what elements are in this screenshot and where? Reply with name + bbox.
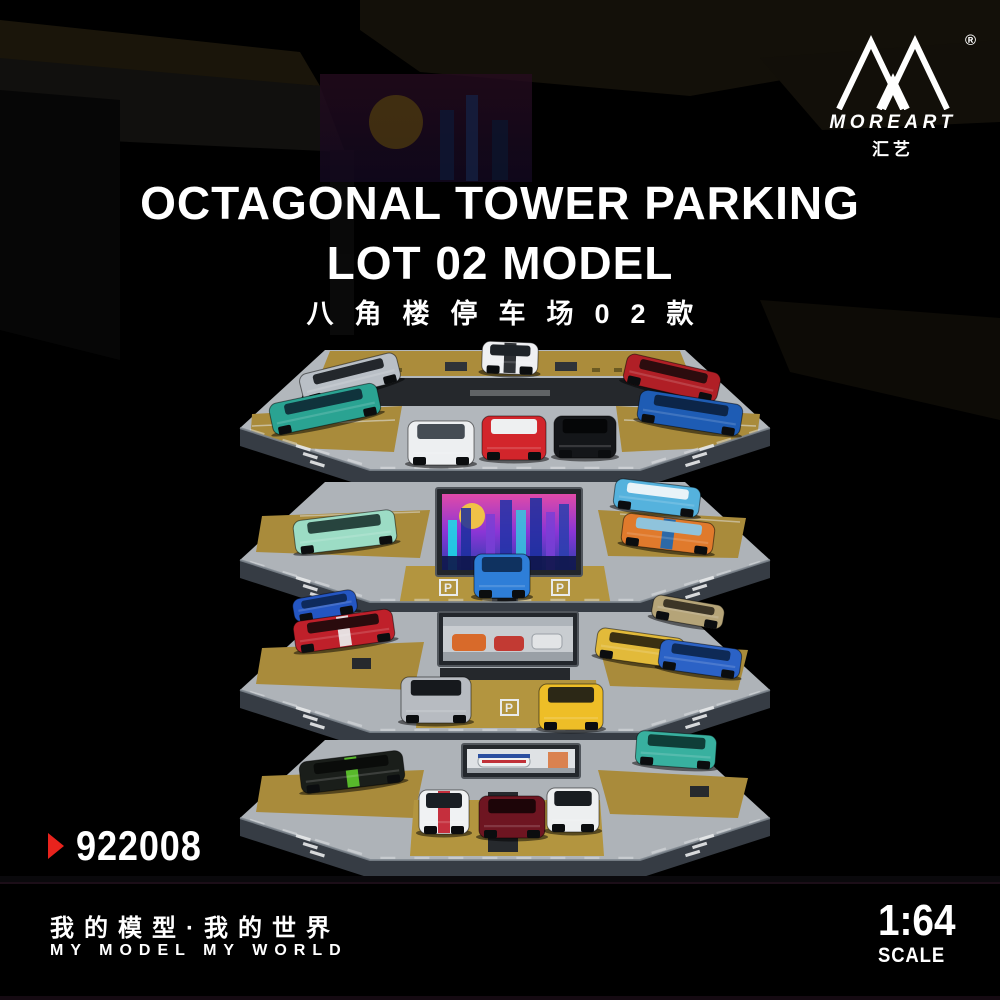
title-line-1: OCTAGONAL TOWER PARKING [0, 176, 1000, 230]
car-blue-gt3-wing [471, 554, 533, 602]
car-silver-gtr [398, 677, 474, 727]
svg-text:P: P [444, 581, 452, 595]
car-martini-porsche [416, 790, 472, 838]
car-yellow-rwb-porsche [536, 684, 606, 734]
product-code: 922008 [76, 822, 202, 870]
registered-mark: ® [965, 32, 976, 49]
billboard-race-car [462, 744, 580, 778]
footer-divider [0, 882, 1000, 884]
car-dark-red-918 [476, 796, 548, 842]
bottom-hairline [0, 996, 1000, 1000]
car-teal-jeep [632, 730, 720, 773]
car-white-hypercar [405, 421, 477, 469]
footer-slogan-en: MY MODEL MY WORLD [50, 942, 348, 960]
brand-name: MOREART [808, 112, 978, 134]
car-black-hypercar [551, 416, 619, 462]
moreart-mountain-icon [833, 30, 953, 110]
brand-name-cn: 汇艺 [808, 135, 978, 160]
title-subtitle-cn: 八角楼停车场02款 [0, 292, 1000, 331]
billboard-garage-scene [438, 612, 578, 666]
scale-label: SCALE [878, 944, 945, 968]
product-code-row: 922008 [48, 822, 222, 870]
title-line-2: LOT 02 MODEL [0, 236, 1000, 290]
car-white-rwb-993 [544, 788, 602, 836]
red-arrow-icon [48, 833, 64, 859]
svg-text:P: P [505, 701, 513, 715]
brand-logo: ® MOREART 汇艺 [808, 30, 978, 160]
svg-text:P: P [556, 581, 564, 595]
car-red-white-racer [479, 416, 549, 464]
car-white-918-stripes [478, 341, 541, 379]
footer-slogan-cn: 我的模型·我的世界 [50, 908, 340, 943]
scale-value: 1:64 [878, 896, 956, 946]
poster: P P [0, 0, 1000, 1000]
